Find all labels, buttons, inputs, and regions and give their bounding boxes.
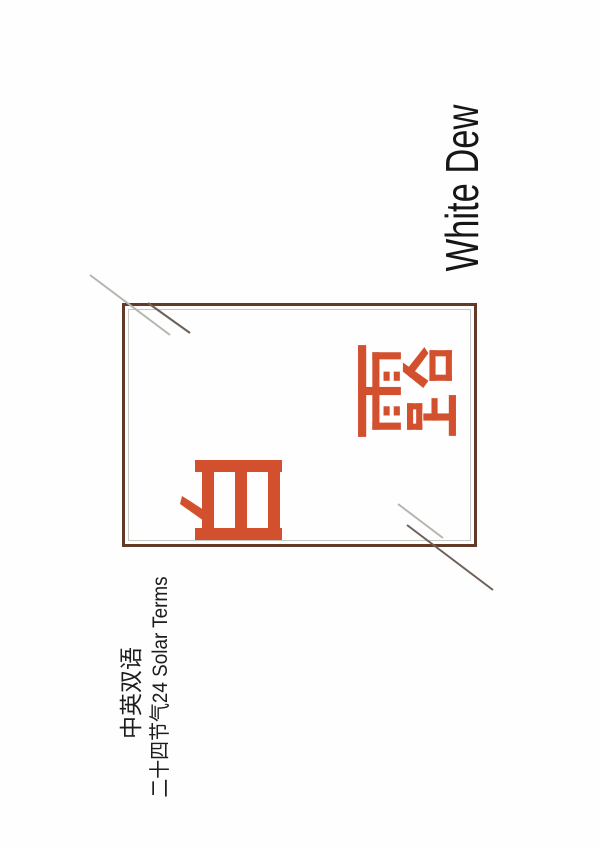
title-english-text: White Dew [435, 105, 489, 272]
hanzi-bai-svg [180, 458, 284, 542]
hanzi-lu-glyph [356, 340, 458, 442]
subtitle-solar-terms-text: 二十四节气24 Solar Terms [144, 576, 174, 797]
hanzi-lu-svg [356, 340, 458, 442]
subtitle-bilingual-text: 中英双语 [112, 647, 146, 739]
hanzi-bai-glyph [180, 458, 284, 542]
solar-term-poster: White Dew [0, 0, 600, 850]
